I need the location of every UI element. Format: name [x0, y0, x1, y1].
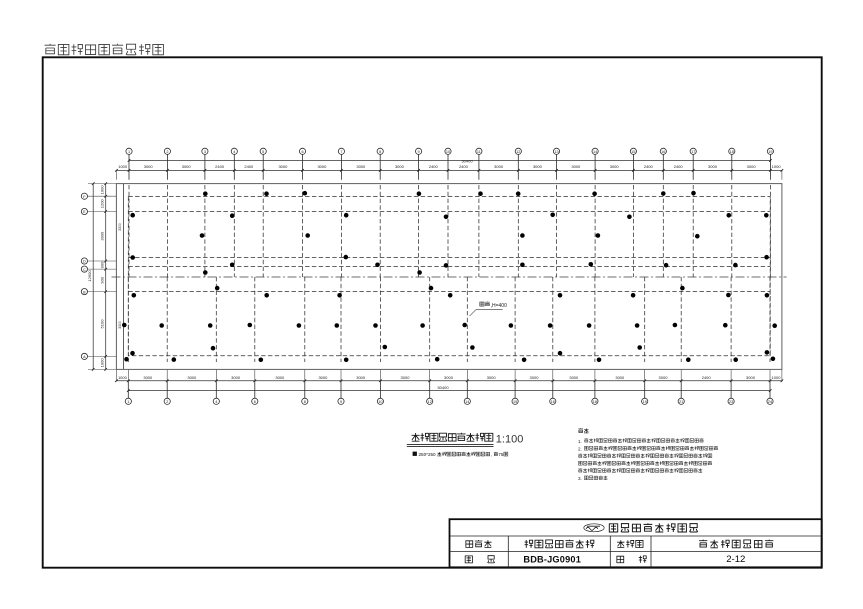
svg-text:2.: 2. — [578, 447, 582, 452]
svg-text:14: 14 — [465, 400, 469, 404]
svg-text:1200: 1200 — [100, 199, 105, 209]
svg-text:16: 16 — [661, 150, 665, 154]
svg-text:21: 21 — [679, 400, 683, 404]
svg-text:3000: 3000 — [571, 164, 581, 169]
svg-text:2400: 2400 — [244, 164, 254, 169]
svg-text:3000: 3000 — [356, 375, 366, 380]
svg-text:3000: 3000 — [401, 375, 411, 380]
svg-text:3000: 3000 — [318, 375, 328, 380]
svg-text:3900: 3900 — [100, 231, 105, 241]
svg-text:1000: 1000 — [100, 185, 105, 195]
svg-text:1000: 1000 — [100, 358, 105, 368]
svg-text:3000: 3000 — [747, 164, 757, 169]
svg-text:7: 7 — [340, 150, 342, 154]
svg-text:24: 24 — [768, 400, 772, 404]
svg-text:3000: 3000 — [444, 375, 454, 380]
svg-text:1000: 1000 — [118, 375, 128, 380]
svg-text:3000: 3000 — [487, 375, 497, 380]
svg-text:3000: 3000 — [533, 164, 543, 169]
svg-text:3000: 3000 — [615, 375, 625, 380]
svg-text:BDB-JG0901: BDB-JG0901 — [523, 554, 581, 564]
svg-text:1:100: 1:100 — [496, 434, 524, 446]
svg-text:12600: 12600 — [87, 270, 92, 282]
svg-text:B: B — [83, 290, 86, 294]
svg-text:3000: 3000 — [278, 164, 288, 169]
svg-text:10: 10 — [378, 400, 382, 404]
svg-text:3000: 3000 — [144, 164, 154, 169]
svg-text:2: 2 — [166, 150, 168, 154]
svg-text:1000: 1000 — [772, 164, 782, 169]
svg-text:16: 16 — [551, 400, 555, 404]
svg-text:3300: 3300 — [118, 223, 122, 231]
svg-text:2400: 2400 — [215, 164, 225, 169]
svg-text:50400: 50400 — [461, 158, 473, 163]
svg-text:900: 900 — [100, 276, 105, 283]
svg-text:D: D — [83, 260, 86, 264]
svg-text:8: 8 — [379, 150, 381, 154]
svg-text:2400: 2400 — [674, 164, 684, 169]
svg-text:2400: 2400 — [644, 164, 654, 169]
svg-text:5: 5 — [262, 150, 264, 154]
svg-text:3000: 3000 — [317, 164, 327, 169]
svg-text:6: 6 — [301, 150, 303, 154]
svg-text:3: 3 — [204, 150, 206, 154]
svg-text:10: 10 — [446, 150, 450, 154]
svg-text:19: 19 — [768, 150, 772, 154]
svg-text:8: 8 — [304, 400, 306, 404]
svg-text:,: , — [491, 452, 492, 457]
svg-text:14: 14 — [593, 150, 597, 154]
svg-text:17: 17 — [691, 150, 695, 154]
svg-text:E: E — [83, 210, 86, 214]
svg-text:9: 9 — [418, 150, 420, 154]
svg-text:3000: 3000 — [231, 375, 241, 380]
svg-text:3000: 3000 — [494, 164, 504, 169]
svg-text:3000: 3000 — [708, 164, 718, 169]
svg-text:18: 18 — [593, 400, 597, 404]
svg-text:11: 11 — [477, 150, 481, 154]
svg-text:2400: 2400 — [702, 375, 712, 380]
svg-text:3000: 3000 — [182, 164, 192, 169]
svg-text:13: 13 — [554, 150, 558, 154]
svg-text:15: 15 — [513, 400, 517, 404]
svg-text:3000: 3000 — [143, 375, 153, 380]
svg-text:2400: 2400 — [429, 164, 439, 169]
svg-text:4: 4 — [233, 150, 235, 154]
svg-text:C: C — [83, 268, 86, 272]
svg-text:23: 23 — [729, 400, 733, 404]
svg-text:18: 18 — [730, 150, 734, 154]
svg-text:2400: 2400 — [459, 164, 469, 169]
svg-text:3000: 3000 — [395, 164, 405, 169]
svg-text:6: 6 — [254, 400, 256, 404]
svg-text:5100: 5100 — [100, 319, 105, 329]
svg-text:A: A — [83, 355, 86, 359]
svg-text:,H=400: ,H=400 — [491, 303, 507, 309]
svg-text:3.: 3. — [578, 476, 582, 481]
svg-text:15: 15 — [631, 150, 635, 154]
svg-text:900: 900 — [100, 261, 105, 268]
svg-text:2: 2 — [166, 400, 168, 404]
svg-text:3000: 3000 — [275, 375, 285, 380]
svg-text:50400: 50400 — [437, 385, 449, 390]
svg-text:3300: 3300 — [118, 321, 122, 329]
svg-text:3000: 3000 — [659, 375, 669, 380]
svg-text:250*250: 250*250 — [419, 452, 437, 457]
svg-text:2-12: 2-12 — [726, 554, 745, 565]
svg-text:3000: 3000 — [746, 375, 756, 380]
svg-text:3000: 3000 — [187, 375, 197, 380]
svg-text:75: 75 — [498, 452, 504, 457]
svg-text:9: 9 — [340, 400, 342, 404]
svg-text:1.: 1. — [578, 439, 582, 444]
svg-text:3000: 3000 — [356, 164, 366, 169]
svg-text:4: 4 — [215, 400, 217, 404]
svg-text:3000: 3000 — [530, 375, 540, 380]
svg-text:3000: 3000 — [569, 375, 579, 380]
svg-text:1000: 1000 — [118, 164, 128, 169]
svg-text:19: 19 — [643, 400, 647, 404]
svg-text:1: 1 — [128, 150, 130, 154]
svg-text:3000: 3000 — [610, 164, 620, 169]
svg-text:12: 12 — [516, 150, 520, 154]
svg-text:12: 12 — [428, 400, 432, 404]
svg-text:1: 1 — [127, 400, 129, 404]
svg-text:1000: 1000 — [772, 375, 782, 380]
